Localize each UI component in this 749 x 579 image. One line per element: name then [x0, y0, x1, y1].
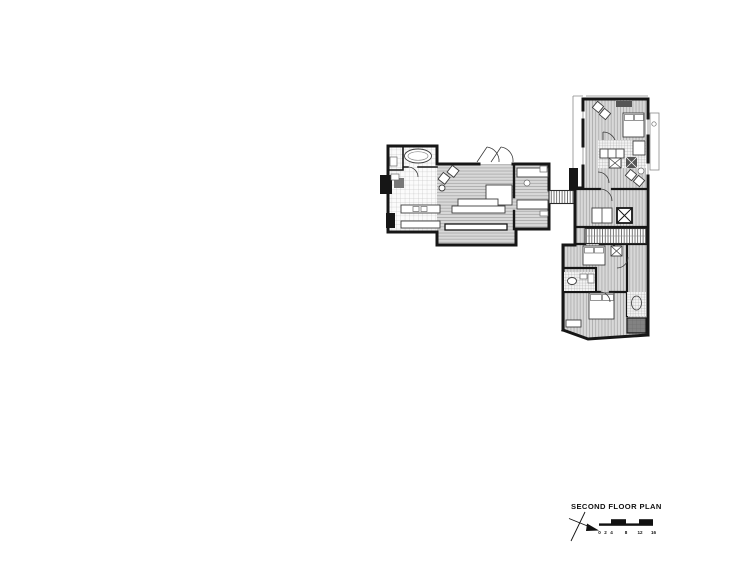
right-wing — [563, 96, 659, 339]
title-block: SECOND FLOOR PLAN 0 2 4 8 12 16 — [569, 502, 662, 541]
scale-label: 16 — [651, 530, 657, 535]
left-wing — [380, 146, 549, 245]
media-console — [445, 224, 507, 230]
page: SECOND FLOOR PLAN 0 2 4 8 12 16 — [0, 0, 749, 579]
cooktop-icon — [421, 207, 427, 212]
fireplace-block — [380, 175, 392, 194]
dresser — [566, 320, 581, 327]
pillow-icon — [595, 248, 604, 254]
chimney-block — [569, 168, 578, 190]
desk-icon — [517, 200, 548, 209]
pillow-icon — [625, 115, 634, 121]
side-table-icon — [439, 185, 445, 191]
plan-title: SECOND FLOOR PLAN — [571, 502, 662, 511]
sink-icon — [391, 174, 399, 180]
kitchen-island — [401, 221, 440, 228]
pillow-icon — [585, 248, 594, 254]
toilet-icon — [390, 157, 397, 166]
mechanical-closet — [627, 318, 646, 333]
floor-plan-drawing: SECOND FLOOR PLAN 0 2 4 8 12 16 — [0, 0, 749, 579]
side-table-icon — [638, 168, 644, 174]
sink-icon — [568, 278, 577, 285]
cabinet-icon — [540, 166, 547, 172]
stairs — [585, 229, 646, 244]
bathtub-icon — [633, 141, 645, 155]
scale-label: 0 — [598, 530, 601, 535]
balcony-table-icon — [652, 122, 656, 126]
wardrobe — [616, 101, 632, 107]
sofa-icon — [452, 206, 505, 213]
north-arrow-icon — [569, 512, 599, 541]
scale-label: 4 — [610, 530, 613, 535]
scale-bar: 0 2 4 8 12 16 — [598, 519, 656, 535]
scale-label: 12 — [637, 530, 643, 535]
cabinet-icon — [588, 274, 594, 283]
vanity-cabinet — [600, 149, 624, 158]
door-swing-icon — [477, 147, 513, 162]
pillow-icon — [635, 115, 644, 121]
bathroom-bottom — [564, 272, 595, 291]
cabinet-icon — [540, 211, 548, 216]
sink-icon — [413, 207, 419, 212]
pantry-block — [386, 213, 395, 228]
scale-label: 2 — [604, 530, 607, 535]
kitchen-counter — [401, 205, 440, 213]
toilet-icon — [580, 274, 587, 279]
scale-label: 8 — [625, 530, 628, 535]
pillow-icon — [591, 295, 602, 301]
chair-icon — [524, 180, 530, 186]
bathtub-icon — [405, 149, 432, 163]
